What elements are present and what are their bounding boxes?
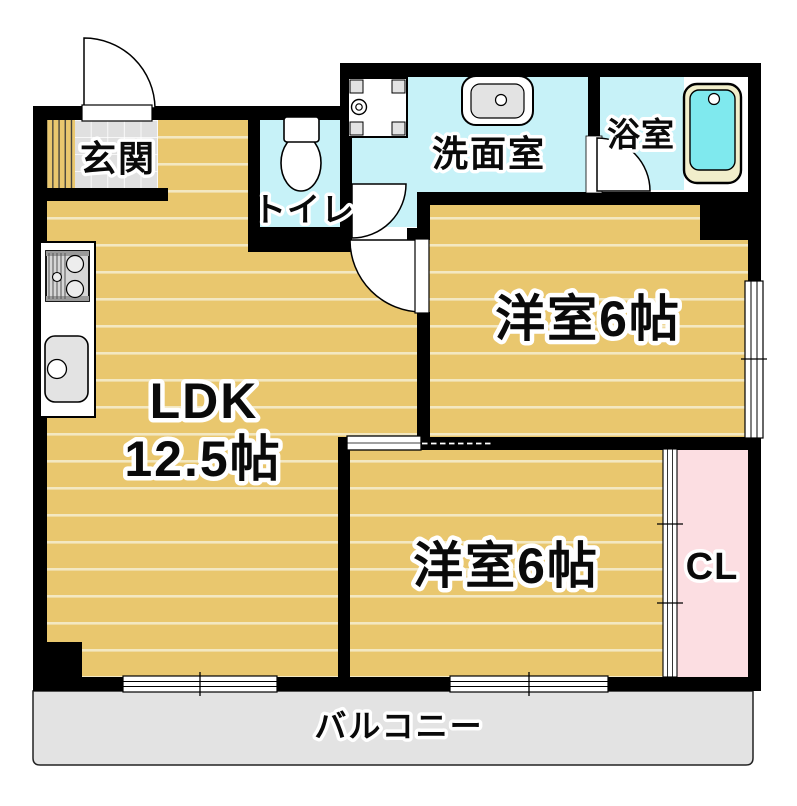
ldk-balcony-window [123, 672, 277, 696]
label-ldk-size: 12.5帖 [124, 431, 281, 487]
entrance-door-leaf [82, 105, 152, 121]
pipe-space-notch [700, 192, 748, 240]
label-western-room-lower: 洋室6帖 [413, 538, 599, 594]
kitchen-sink [45, 336, 88, 402]
faucet-icon [496, 95, 507, 106]
label-balcony: バルコニー [314, 708, 483, 744]
right-sliding-window [741, 281, 767, 438]
washbasin [462, 76, 533, 125]
burner-icon [67, 256, 84, 273]
toilet-bowl [281, 117, 321, 191]
floorplan-svg: 玄関 トイレ 洗面室 浴室 洋室6帖 LDK 12.5帖 洋室6帖 CL バルコ… [0, 0, 797, 806]
washing-machine-pan [348, 78, 407, 137]
ldk-door-leaf [415, 239, 429, 313]
gas-stove [46, 251, 89, 301]
label-entrance: 玄関 [80, 138, 156, 179]
floorplan-canvas: 玄関 トイレ 洗面室 浴室 洋室6帖 LDK 12.5帖 洋室6帖 CL バルコ… [0, 0, 797, 806]
sliding-door-lower-room [347, 436, 492, 450]
bathtub [684, 84, 741, 183]
shoe-cabinet [46, 120, 75, 188]
faucet-icon [48, 360, 67, 379]
label-washroom: 洗面室 [432, 133, 546, 174]
drain-icon [709, 94, 720, 105]
label-western-room-upper: 洋室6帖 [495, 291, 681, 347]
burner-icon [67, 281, 84, 298]
label-bathroom: 浴室 [607, 116, 675, 153]
label-closet: CL [686, 546, 739, 588]
drain-icon [352, 100, 367, 115]
kitchen-counter [40, 242, 95, 417]
label-toilet: トイレ [253, 191, 355, 228]
lower-room-balcony-window [450, 672, 608, 696]
label-ldk: LDK [150, 373, 259, 429]
